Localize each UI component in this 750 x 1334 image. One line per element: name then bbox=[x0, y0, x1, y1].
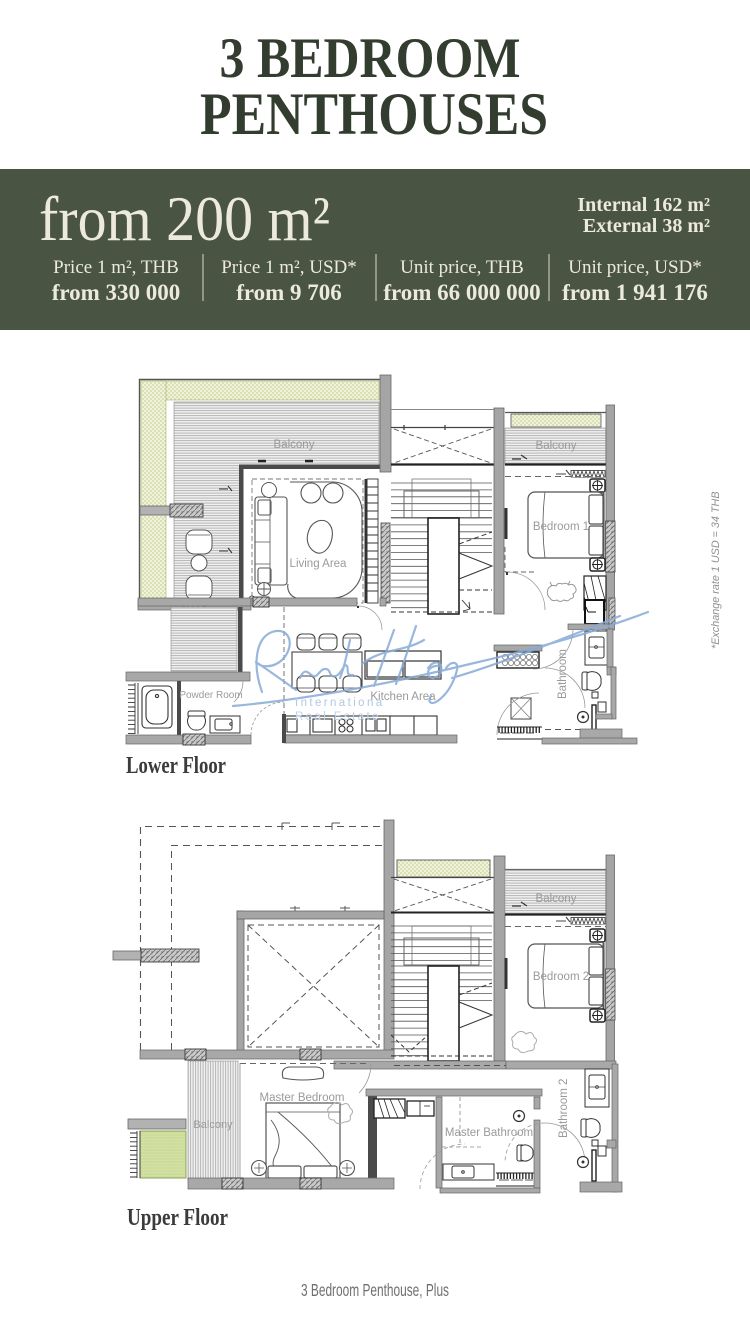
svg-text:from 66 000 000: from 66 000 000 bbox=[383, 280, 540, 305]
svg-text:PENTHOUSES: PENTHOUSES bbox=[200, 81, 548, 147]
svg-text:Upper Floor: Upper Floor bbox=[127, 1205, 228, 1231]
svg-text:from 9 706: from 9 706 bbox=[236, 280, 342, 305]
svg-text:Bedroom 2: Bedroom 2 bbox=[533, 971, 589, 983]
svg-text:Real Estate: Real Estate bbox=[295, 711, 381, 723]
svg-text:Price 1 m², THB: Price 1 m², THB bbox=[53, 257, 179, 278]
svg-text:Internationa: Internationa bbox=[295, 697, 385, 709]
svg-text:*Exchange rate 1 USD = 34 THB: *Exchange rate 1 USD = 34 THB bbox=[710, 491, 722, 649]
svg-text:Balcony: Balcony bbox=[536, 440, 577, 452]
svg-text:Bathroom: Bathroom bbox=[557, 649, 569, 699]
svg-text:Internal 162 m²: Internal 162 m² bbox=[577, 194, 710, 216]
svg-text:Bathroom 2: Bathroom 2 bbox=[558, 1079, 570, 1138]
svg-text:from 330 000: from 330 000 bbox=[52, 280, 181, 305]
svg-text:External 38 m²: External 38 m² bbox=[583, 215, 710, 237]
svg-text:Unit price, USD*: Unit price, USD* bbox=[568, 257, 702, 278]
svg-text:from 1 941 176: from 1 941 176 bbox=[562, 280, 708, 305]
svg-text:Balcony: Balcony bbox=[274, 439, 315, 451]
svg-text:Master Bedroom: Master Bedroom bbox=[259, 1092, 344, 1104]
svg-text:Unit price, THB: Unit price, THB bbox=[400, 257, 524, 278]
svg-text:Lower Floor: Lower Floor bbox=[126, 753, 226, 779]
svg-text:from 200 m²: from 200 m² bbox=[39, 183, 330, 254]
svg-text:Balcony: Balcony bbox=[536, 893, 577, 905]
svg-text:Powder Room: Powder Room bbox=[179, 690, 242, 701]
svg-text:Price 1 m², USD*: Price 1 m², USD* bbox=[221, 257, 357, 278]
svg-text:Balcony: Balcony bbox=[193, 1119, 233, 1131]
svg-text:Bedroom 1: Bedroom 1 bbox=[533, 521, 589, 533]
svg-text:Living Area: Living Area bbox=[290, 558, 348, 570]
svg-text:3 Bedroom Penthouse, Plus: 3 Bedroom Penthouse, Plus bbox=[301, 1280, 449, 1300]
svg-text:Master Bathroom: Master Bathroom bbox=[445, 1127, 533, 1139]
